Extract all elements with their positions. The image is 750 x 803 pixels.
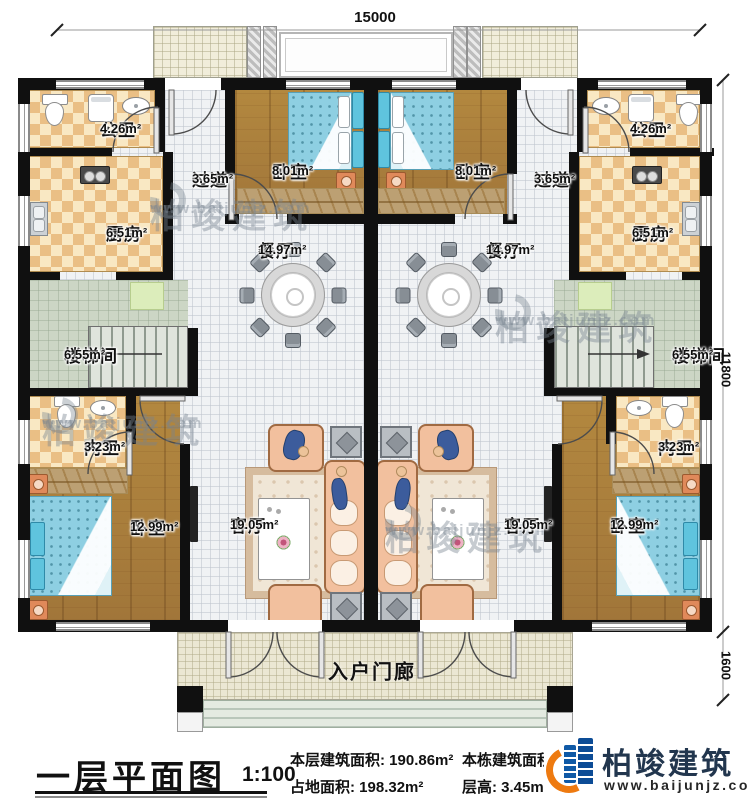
person-head	[336, 466, 347, 477]
sink	[626, 400, 652, 416]
stat-building-area: 本栋建筑面积:	[462, 749, 557, 770]
stove	[80, 166, 110, 184]
wardrobe	[378, 188, 505, 214]
logo-building-icon	[578, 738, 593, 786]
sofa-cushion	[384, 560, 412, 586]
plan-scale: 1:100	[242, 763, 296, 787]
brand-logo: 柏竣建筑 www.baijunjz.com	[544, 733, 750, 803]
pillow	[392, 96, 404, 128]
headboard-cabinet	[378, 92, 390, 129]
nightstand	[28, 474, 48, 494]
headboard-cabinet	[378, 131, 390, 168]
sofa-cushion	[384, 530, 412, 556]
wall	[28, 272, 60, 280]
stat-ground-area: 占地面积: 198.32m²	[290, 776, 423, 797]
terrace-right	[482, 26, 578, 78]
sofa-cushion	[330, 530, 358, 556]
dimension-top: 15000	[320, 9, 430, 26]
dining-chair	[285, 333, 301, 348]
headboard-cabinet	[683, 558, 698, 590]
wall	[552, 444, 562, 620]
kitchen-sink	[30, 202, 48, 236]
porch-post	[547, 686, 573, 712]
window	[18, 196, 30, 246]
coffee-table	[432, 498, 484, 580]
sink	[592, 97, 620, 115]
wall	[682, 272, 712, 280]
wall	[606, 396, 616, 444]
dimension-right-lower: 1600	[719, 644, 734, 688]
dining-chair	[396, 288, 411, 304]
stat-floor-area: 本层建筑面积: 190.86m²	[290, 749, 453, 770]
floor-mat	[578, 282, 612, 310]
door-opening	[420, 620, 514, 632]
wall	[126, 396, 136, 444]
sink	[90, 400, 116, 416]
logo-url-text: www.baijunjz.com	[604, 777, 750, 793]
washing-machine	[628, 94, 654, 122]
wall	[155, 90, 165, 152]
dining-chair	[240, 288, 255, 304]
pillow	[338, 132, 350, 164]
wall	[225, 90, 235, 174]
porch-post-base	[177, 712, 203, 732]
column	[467, 26, 481, 78]
window	[700, 196, 712, 246]
column	[453, 26, 467, 78]
wall	[188, 328, 198, 396]
wall	[163, 152, 173, 278]
toilet	[662, 396, 686, 428]
window	[286, 80, 350, 89]
headboard-cabinet	[30, 558, 45, 590]
dining-chair	[441, 333, 457, 348]
dining-chair	[488, 288, 503, 304]
nightstand	[682, 474, 700, 494]
porch-post-base	[547, 712, 573, 732]
column	[263, 26, 277, 78]
wardrobe	[237, 188, 364, 214]
wall	[28, 148, 112, 156]
floor-plan-page: 柏竣建筑www.baijunjz.com 柏竣建筑www.baijunjz.co…	[0, 0, 750, 803]
terrace-left	[153, 26, 247, 78]
nightstand	[682, 600, 700, 620]
headboard-cabinet	[352, 92, 364, 129]
tv	[544, 486, 552, 542]
wall	[287, 214, 364, 224]
dimension-right-upper: 11800	[719, 340, 734, 400]
side-table	[380, 426, 412, 458]
wall	[364, 90, 378, 620]
plan-title: 一层平面图	[36, 750, 226, 799]
window	[18, 540, 30, 598]
headboard-cabinet	[683, 522, 698, 556]
window	[598, 80, 686, 89]
person-head	[298, 446, 309, 457]
dining-table	[417, 263, 481, 327]
window	[700, 420, 712, 464]
window	[592, 622, 686, 631]
headboard-cabinet	[30, 522, 45, 556]
wall	[116, 272, 173, 280]
washing-machine	[88, 94, 114, 122]
tv	[190, 486, 198, 542]
wall	[544, 328, 554, 396]
stat-storey-height: 层高: 3.45m	[462, 776, 544, 797]
kitchen-sink	[682, 202, 700, 236]
door-opening	[228, 620, 322, 632]
logo-building-icon	[564, 745, 576, 783]
wall	[322, 620, 420, 632]
sink	[122, 97, 150, 115]
door-opening	[165, 78, 221, 90]
wall	[180, 444, 190, 620]
dining-chair	[332, 288, 347, 304]
window	[18, 420, 30, 464]
room-label-porch: 入户门廊	[328, 656, 416, 685]
dining-chair	[441, 242, 457, 257]
toilet	[54, 396, 78, 428]
porch-steps	[203, 700, 547, 728]
roof-slab-center	[279, 32, 453, 78]
wall	[507, 90, 517, 174]
wall	[503, 214, 517, 224]
sofa-cushion	[330, 560, 358, 586]
wall	[577, 90, 587, 152]
toilet	[42, 94, 66, 126]
column	[247, 26, 261, 78]
window	[700, 540, 712, 598]
toilet	[676, 94, 700, 126]
window	[392, 80, 456, 89]
stairs-right	[554, 326, 654, 388]
porch-post	[177, 686, 203, 712]
floor-mat	[130, 282, 164, 310]
headboard-cabinet	[352, 131, 364, 168]
stove	[632, 166, 662, 184]
person-head	[433, 446, 444, 457]
window	[18, 104, 30, 152]
window	[56, 622, 150, 631]
person-head	[396, 466, 407, 477]
wall	[569, 272, 626, 280]
coffee-table	[258, 498, 310, 580]
window	[56, 80, 144, 89]
pillow	[392, 132, 404, 164]
pillow	[338, 96, 350, 128]
window	[700, 104, 712, 152]
nightstand	[28, 600, 48, 620]
wall	[18, 388, 198, 396]
door-opening	[521, 78, 577, 90]
dining-table	[261, 263, 325, 327]
wall	[225, 214, 239, 224]
wall	[378, 214, 455, 224]
wall	[544, 388, 712, 396]
side-table	[330, 426, 362, 458]
